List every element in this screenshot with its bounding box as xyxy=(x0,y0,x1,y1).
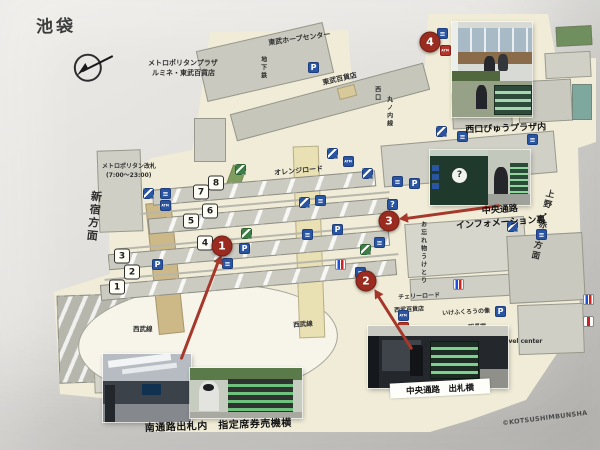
building-block xyxy=(556,25,593,47)
copyright-text: ©KOTSUSHIMBUNSHA xyxy=(502,409,588,427)
platform-number-6: 6 xyxy=(202,204,218,219)
photo-art xyxy=(458,52,532,63)
photo-view-plaza xyxy=(452,22,532,117)
atm-icon-text: ATM xyxy=(442,49,449,53)
photo-art xyxy=(142,384,161,396)
platform-number-3: 3 xyxy=(114,249,130,264)
restroom-icon xyxy=(453,279,464,290)
photo-information-booth: ? xyxy=(430,150,530,205)
photo-art xyxy=(203,384,213,391)
guide-icon xyxy=(360,244,371,255)
building-block xyxy=(194,118,226,162)
atm-icon-text: ATM xyxy=(345,160,352,164)
sign-icon: ≡ xyxy=(315,195,326,206)
marker-1: 1 xyxy=(212,236,233,257)
label-subway: 地下鉄 xyxy=(259,56,266,80)
atm-icon-text: ATM xyxy=(162,204,169,208)
guide-icon xyxy=(235,164,246,175)
label-metropolitan-plaza: メトロポリタンプラザ xyxy=(148,60,218,68)
restroom-icon xyxy=(583,316,594,327)
marker-3: 3 xyxy=(379,211,400,232)
parking-icon: P xyxy=(495,306,506,317)
building-block xyxy=(544,51,591,79)
building-block xyxy=(97,149,144,232)
atm-icon: ATM xyxy=(160,200,171,211)
label-shinjuku-direction: 新宿方面 xyxy=(85,190,102,243)
photo-art xyxy=(494,167,508,198)
platform-number-5: 5 xyxy=(183,214,199,229)
atm-icon: ATM xyxy=(398,310,409,321)
escalator-icon xyxy=(299,197,310,208)
atm-icon: ATM xyxy=(343,156,354,167)
sign-icon: ≡ xyxy=(392,176,403,187)
label-marunouchi-line: 丸ノ内線 xyxy=(385,96,392,128)
building-block xyxy=(506,232,585,304)
parking-icon: P xyxy=(152,259,163,270)
photo-art xyxy=(498,54,508,71)
platform-number-7: 7 xyxy=(193,185,209,200)
label-seibu-line: 西武線 xyxy=(133,326,153,333)
escalator-icon xyxy=(362,168,373,179)
guide-icon xyxy=(241,228,252,239)
photo-south-passage xyxy=(103,354,191,422)
page-title: 池袋 xyxy=(36,12,76,38)
label-metropolitan-gate: メトロポリタン改札 xyxy=(102,164,156,171)
marker-2: 2 xyxy=(356,271,377,292)
label-west-exit: 西口 xyxy=(373,86,380,102)
escalator-icon xyxy=(436,126,447,137)
photo-art xyxy=(432,174,439,180)
photo-art xyxy=(430,150,488,156)
escalator-icon xyxy=(143,188,154,199)
photo-art xyxy=(432,183,439,189)
label-seibu-line: 西武線 xyxy=(293,321,313,329)
platform-number-4: 4 xyxy=(197,236,213,251)
information-icon: ? xyxy=(387,199,398,210)
photo-ticket-machine xyxy=(190,368,302,418)
label-lost-and-found: お忘れ物うけとり xyxy=(419,221,426,285)
platform-number-2: 2 xyxy=(124,265,140,280)
label-metropolitan-gate-hours: (7:00〜23:00) xyxy=(106,173,152,180)
photo-art xyxy=(430,341,480,379)
sign-icon: ≡ xyxy=(302,229,313,240)
sign-icon: ≡ xyxy=(536,229,547,240)
building-block xyxy=(572,84,592,120)
atm-red-icon: ATM xyxy=(440,45,451,56)
building-block xyxy=(517,303,585,355)
photo-art xyxy=(368,336,379,388)
sign-icon: ≡ xyxy=(160,188,171,199)
question-mark-badge: ? xyxy=(452,168,467,183)
parking-icon: P xyxy=(239,243,250,254)
sign-icon: ≡ xyxy=(527,134,538,145)
photo-art xyxy=(510,163,528,194)
platform-number-8: 8 xyxy=(208,176,224,191)
photographed-paper: 池袋 xyxy=(0,0,600,450)
platform-number-1: 1 xyxy=(109,280,125,295)
restroom-icon xyxy=(335,259,346,270)
marker-4: 4 xyxy=(420,32,441,53)
caption-central-ticket-office-text: 中央通路 出札横 xyxy=(406,381,475,397)
compass-icon xyxy=(70,48,120,91)
photo-art xyxy=(228,379,293,412)
parking-icon: P xyxy=(332,224,343,235)
photo-art xyxy=(368,326,508,336)
photo-art xyxy=(494,85,532,116)
parking-icon: P xyxy=(308,62,319,73)
atm-icon-text: ATM xyxy=(400,314,407,318)
photo-art xyxy=(105,385,116,422)
parking-icon: P xyxy=(409,178,420,189)
photo-art xyxy=(458,28,532,53)
map-art xyxy=(70,48,119,87)
label-lumine-tobu: ルミネ・東武百貨店 xyxy=(152,70,215,78)
sign-icon: ≡ xyxy=(374,237,385,248)
escalator-icon xyxy=(327,148,338,159)
photo-art xyxy=(476,85,487,110)
restroom-icon xyxy=(583,294,594,305)
photo-art xyxy=(432,165,439,171)
